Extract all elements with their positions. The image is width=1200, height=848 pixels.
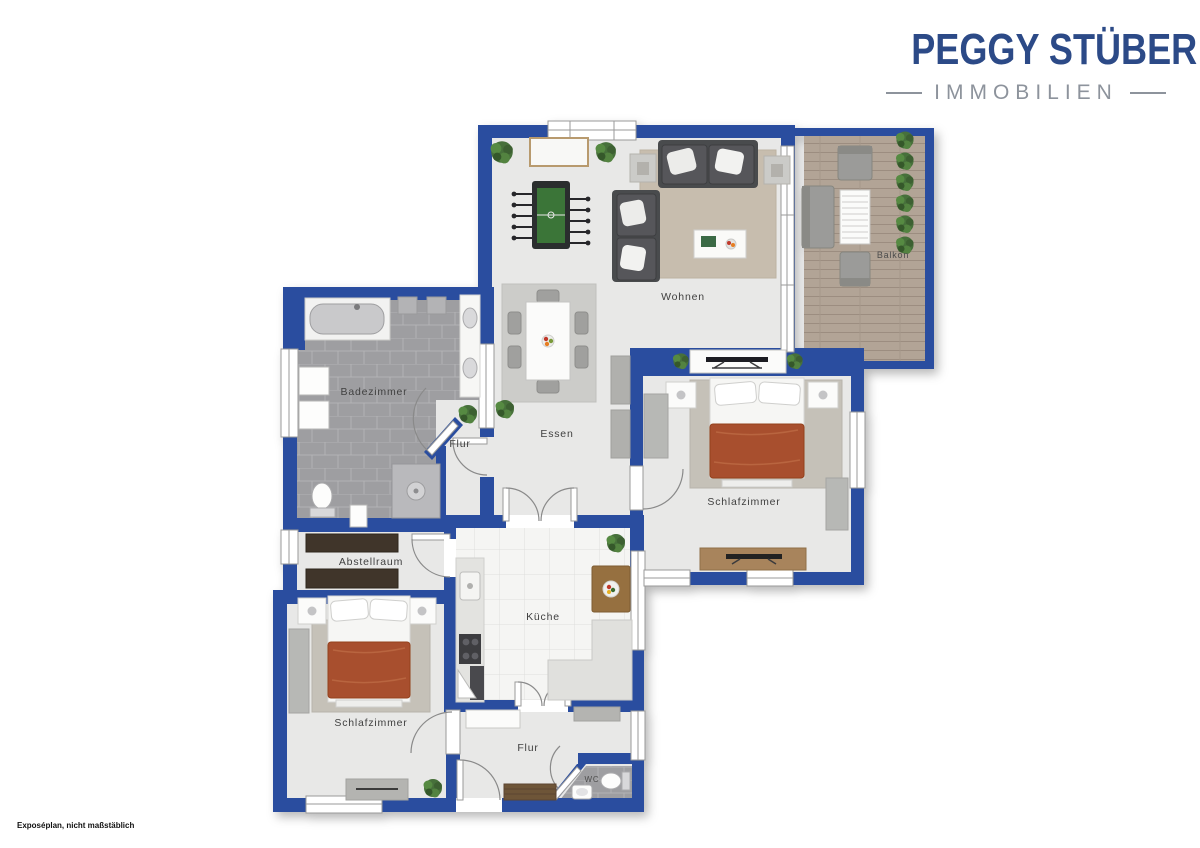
window-kueche-right — [631, 551, 645, 650]
label-kueche: Küche — [526, 611, 560, 623]
balcony-table — [840, 190, 870, 244]
fruit-bowl — [542, 335, 554, 347]
doormat — [504, 784, 556, 800]
bath-cabinet-2 — [427, 297, 446, 314]
label-wc: WC — [585, 775, 600, 784]
storage-shelf-2 — [306, 569, 398, 588]
shower — [392, 464, 440, 518]
door-leaf-entry — [457, 760, 463, 800]
company-logo: PEGGY STÜBER IMMOBILIEN — [886, 28, 1166, 105]
label-schlafzimmer-links: Schlafzimmer — [334, 717, 407, 729]
storage-shelf-1 — [306, 534, 398, 552]
door-gap-abstellraum — [444, 539, 456, 577]
essen-cabinet-1 — [611, 356, 630, 404]
tv-sideboard — [700, 548, 806, 570]
sideboard-wohnen — [530, 138, 588, 166]
window-schlafzimmer-rechts-bottom-1 — [644, 570, 690, 586]
bath-cabinet-1 — [398, 297, 417, 314]
double-bed — [328, 596, 410, 707]
bathtub — [305, 298, 390, 340]
disclaimer-text: Exposéplan, nicht maßstäblich — [17, 821, 134, 830]
window-essen-left — [479, 344, 494, 428]
door-leaf-kueche-top-l — [503, 488, 509, 521]
door-gap-kueche-bottom — [518, 700, 568, 712]
hall-sideboard-white — [466, 710, 520, 728]
sofa-left — [612, 190, 660, 282]
door-leaf-kueche-top-r — [571, 488, 577, 521]
window-bad-left — [281, 349, 298, 437]
tv-niche — [690, 350, 786, 373]
label-essen: Essen — [540, 428, 573, 440]
label-balkon: Balkon — [877, 250, 909, 260]
washer — [299, 367, 329, 395]
double-bed — [710, 378, 804, 487]
wc-toilet — [601, 772, 630, 790]
dresser-bottom — [346, 779, 408, 800]
bath-vanity — [460, 295, 480, 397]
side-table-right — [764, 156, 790, 184]
window-schlafzimmer-rechts-right — [850, 412, 865, 488]
dresser-left — [644, 394, 668, 458]
door-schlafzimmer-rechts — [630, 466, 643, 510]
window-schlafzimmer-rechts-bottom-2 — [747, 570, 793, 586]
wardrobe-left — [289, 629, 309, 713]
coffee-table — [694, 230, 746, 258]
balcony-chair-top — [838, 146, 872, 180]
kitchen-table — [592, 566, 630, 612]
floorplan-drawing: Wohnen Essen Balkon Badezimmer Flur Abst… — [0, 0, 1200, 848]
hall-sideboard-gray — [574, 707, 620, 721]
company-tagline: IMMOBILIEN — [934, 81, 1118, 105]
bath-stool — [350, 505, 367, 527]
wardrobe-right — [826, 478, 848, 530]
company-tagline-row: IMMOBILIEN — [886, 81, 1166, 105]
floorplan-page: PEGGY STÜBER IMMOBILIEN — [0, 0, 1200, 848]
label-flur-unten: Flur — [517, 742, 538, 754]
window-flur-right — [631, 711, 645, 760]
label-badezimmer: Badezimmer — [341, 386, 408, 398]
essen-cabinet-2 — [611, 410, 630, 458]
label-flur-mitte: Flur — [449, 438, 470, 450]
tagline-rule-left — [886, 92, 922, 94]
company-name: PEGGY STÜBER — [911, 28, 1141, 72]
building: Wohnen Essen Balkon Badezimmer Flur Abst… — [273, 121, 934, 813]
wc-sink — [572, 785, 592, 799]
dryer — [299, 401, 329, 429]
door-schlafzimmer-links — [446, 710, 460, 754]
tagline-rule-right — [1130, 92, 1166, 94]
label-schlafzimmer-rechts: Schlafzimmer — [707, 496, 780, 508]
door-gap-kueche-top — [506, 515, 574, 528]
label-abstellraum: Abstellraum — [339, 556, 403, 568]
kitchen-stove — [459, 634, 481, 664]
door-leaf-kueche-bottom-l — [515, 682, 521, 706]
side-table-left — [630, 154, 656, 182]
kitchen-sink — [460, 572, 480, 600]
sofa-top — [658, 140, 758, 188]
label-wohnen: Wohnen — [661, 291, 705, 303]
window-abstellraum-left — [281, 530, 298, 564]
balcony-chair-bottom — [840, 252, 870, 286]
balcony-sofa — [802, 186, 834, 248]
